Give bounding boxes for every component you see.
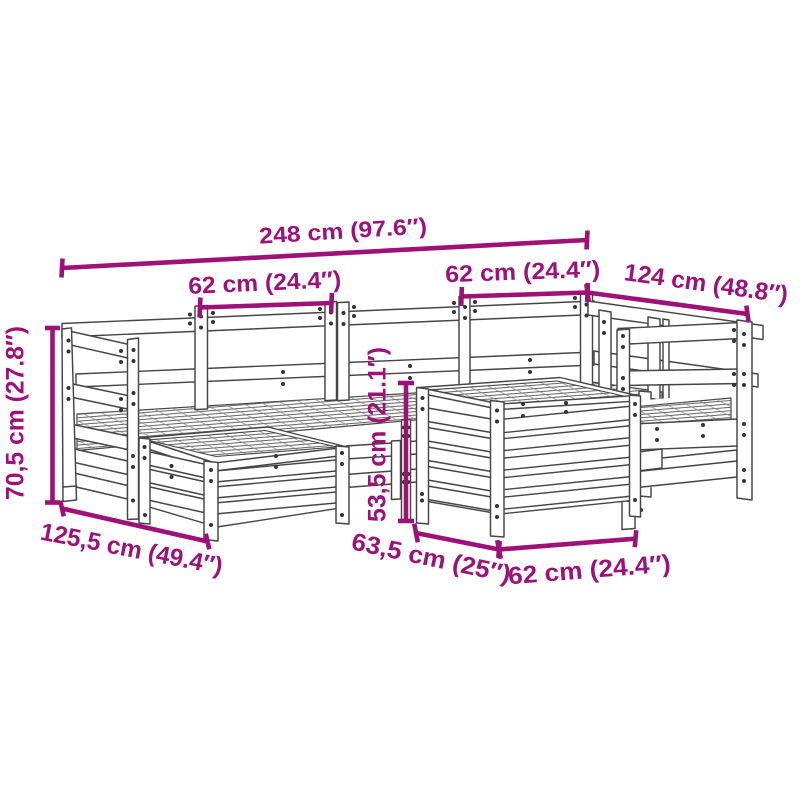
svg-text:62 cm (24.4″): 62 cm (24.4″) xyxy=(188,266,342,299)
svg-text:125,5 cm (49.4″): 125,5 cm (49.4″) xyxy=(38,519,225,581)
svg-text:248 cm (97.6″): 248 cm (97.6″) xyxy=(258,213,427,248)
svg-text:70,5 cm (27.8″): 70,5 cm (27.8″) xyxy=(2,326,30,500)
svg-text:53,5 cm (21.1″): 53,5 cm (21.1″) xyxy=(365,347,392,522)
svg-text:62 cm (24.4″): 62 cm (24.4″) xyxy=(507,551,672,591)
svg-text:62 cm (24.4″): 62 cm (24.4″) xyxy=(445,256,601,287)
